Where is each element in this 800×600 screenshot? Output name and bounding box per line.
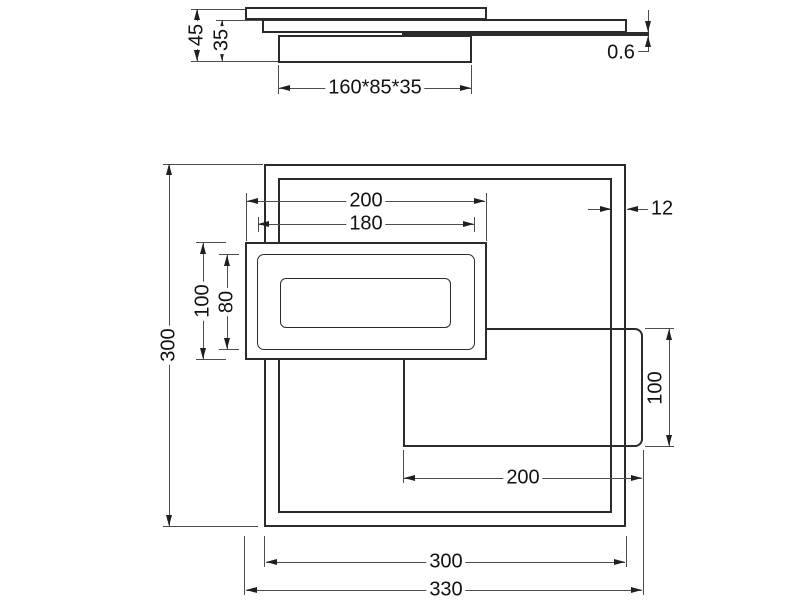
dim200t-arrow-left: [247, 198, 258, 204]
dim80-arrow-up: [224, 255, 230, 266]
dim200b-label: 200: [503, 468, 542, 489]
dim80-label: 80: [217, 288, 238, 316]
dim100l-tick-bottom: [196, 359, 226, 360]
dim45-arrow-up: [194, 9, 200, 20]
dim300l-label: 300: [159, 325, 180, 364]
dim200t-label: 200: [346, 191, 385, 212]
dim330-arrow-right: [631, 587, 642, 593]
dim45-label: 45: [187, 21, 208, 49]
dim300l-arrow-up: [166, 164, 172, 175]
dim100l-arrow-up: [200, 243, 206, 254]
dim180-label: 180: [346, 214, 385, 235]
dim80-arrow-down: [224, 338, 230, 349]
dim300l-ext-bottom: [163, 526, 258, 527]
dim180-arrow-left: [258, 221, 269, 227]
dim200t-arrow-right: [474, 198, 485, 204]
dim330-ext-left: [244, 536, 245, 595]
dim300b-ext-right: [626, 536, 627, 567]
dim-box-ext-right: [471, 65, 472, 94]
dim80-tick-bottom: [219, 349, 239, 350]
dim200b-ext-right: [643, 450, 644, 595]
dim06-label: 0.6: [604, 43, 638, 64]
dim300l-ext-top: [163, 164, 263, 165]
dim330-label: 330: [426, 580, 465, 600]
dim200t-ext-right: [486, 193, 487, 241]
dim200b-arrow-left: [404, 475, 415, 481]
dim06-arrow-up: [645, 36, 651, 47]
dim100r-label: 100: [646, 368, 667, 407]
dim300b-arrow-right: [614, 559, 625, 565]
dim06-arrow-down: [645, 21, 651, 32]
dim200b-arrow-right: [631, 475, 642, 481]
dim100l-label: 100: [193, 281, 214, 320]
dim-box-arrow-left: [279, 85, 290, 91]
dim300l-arrow-down: [166, 515, 172, 526]
side-mounting-box: [278, 35, 472, 63]
dim12-arrow-left: [627, 206, 638, 212]
dim45-ext-bottom: [191, 61, 278, 62]
dim100r-arrow-up: [666, 329, 672, 340]
dim100r-arrow-down: [666, 435, 672, 446]
plan-middle-lamp-diffuser: [280, 278, 451, 328]
dim330-arrow-left: [246, 587, 257, 593]
dim06-leader: [637, 51, 649, 52]
dim180-tick-right: [474, 217, 475, 232]
dim12-arrow-right: [600, 206, 611, 212]
side-frame-panel: [262, 19, 627, 33]
dim300b-label: 300: [426, 552, 465, 573]
dim180-arrow-right: [463, 221, 474, 227]
technical-drawing-canvas: 45 35 160*85*35 0.6 300 200 180 12 100 8…: [0, 0, 800, 600]
dim100l-arrow-down: [200, 348, 206, 359]
dim300b-arrow-left: [266, 559, 277, 565]
dim12-label: 12: [648, 199, 676, 220]
dim35-label: 35: [212, 26, 233, 54]
dim100r-ext-bottom: [645, 446, 674, 447]
dim-box-label: 160*85*35: [325, 78, 424, 99]
dim100r-line: [669, 329, 670, 446]
dim45-arrow-down: [194, 50, 200, 61]
dim-box-arrow-right: [460, 85, 471, 91]
dim300b-ext-left: [264, 536, 265, 567]
